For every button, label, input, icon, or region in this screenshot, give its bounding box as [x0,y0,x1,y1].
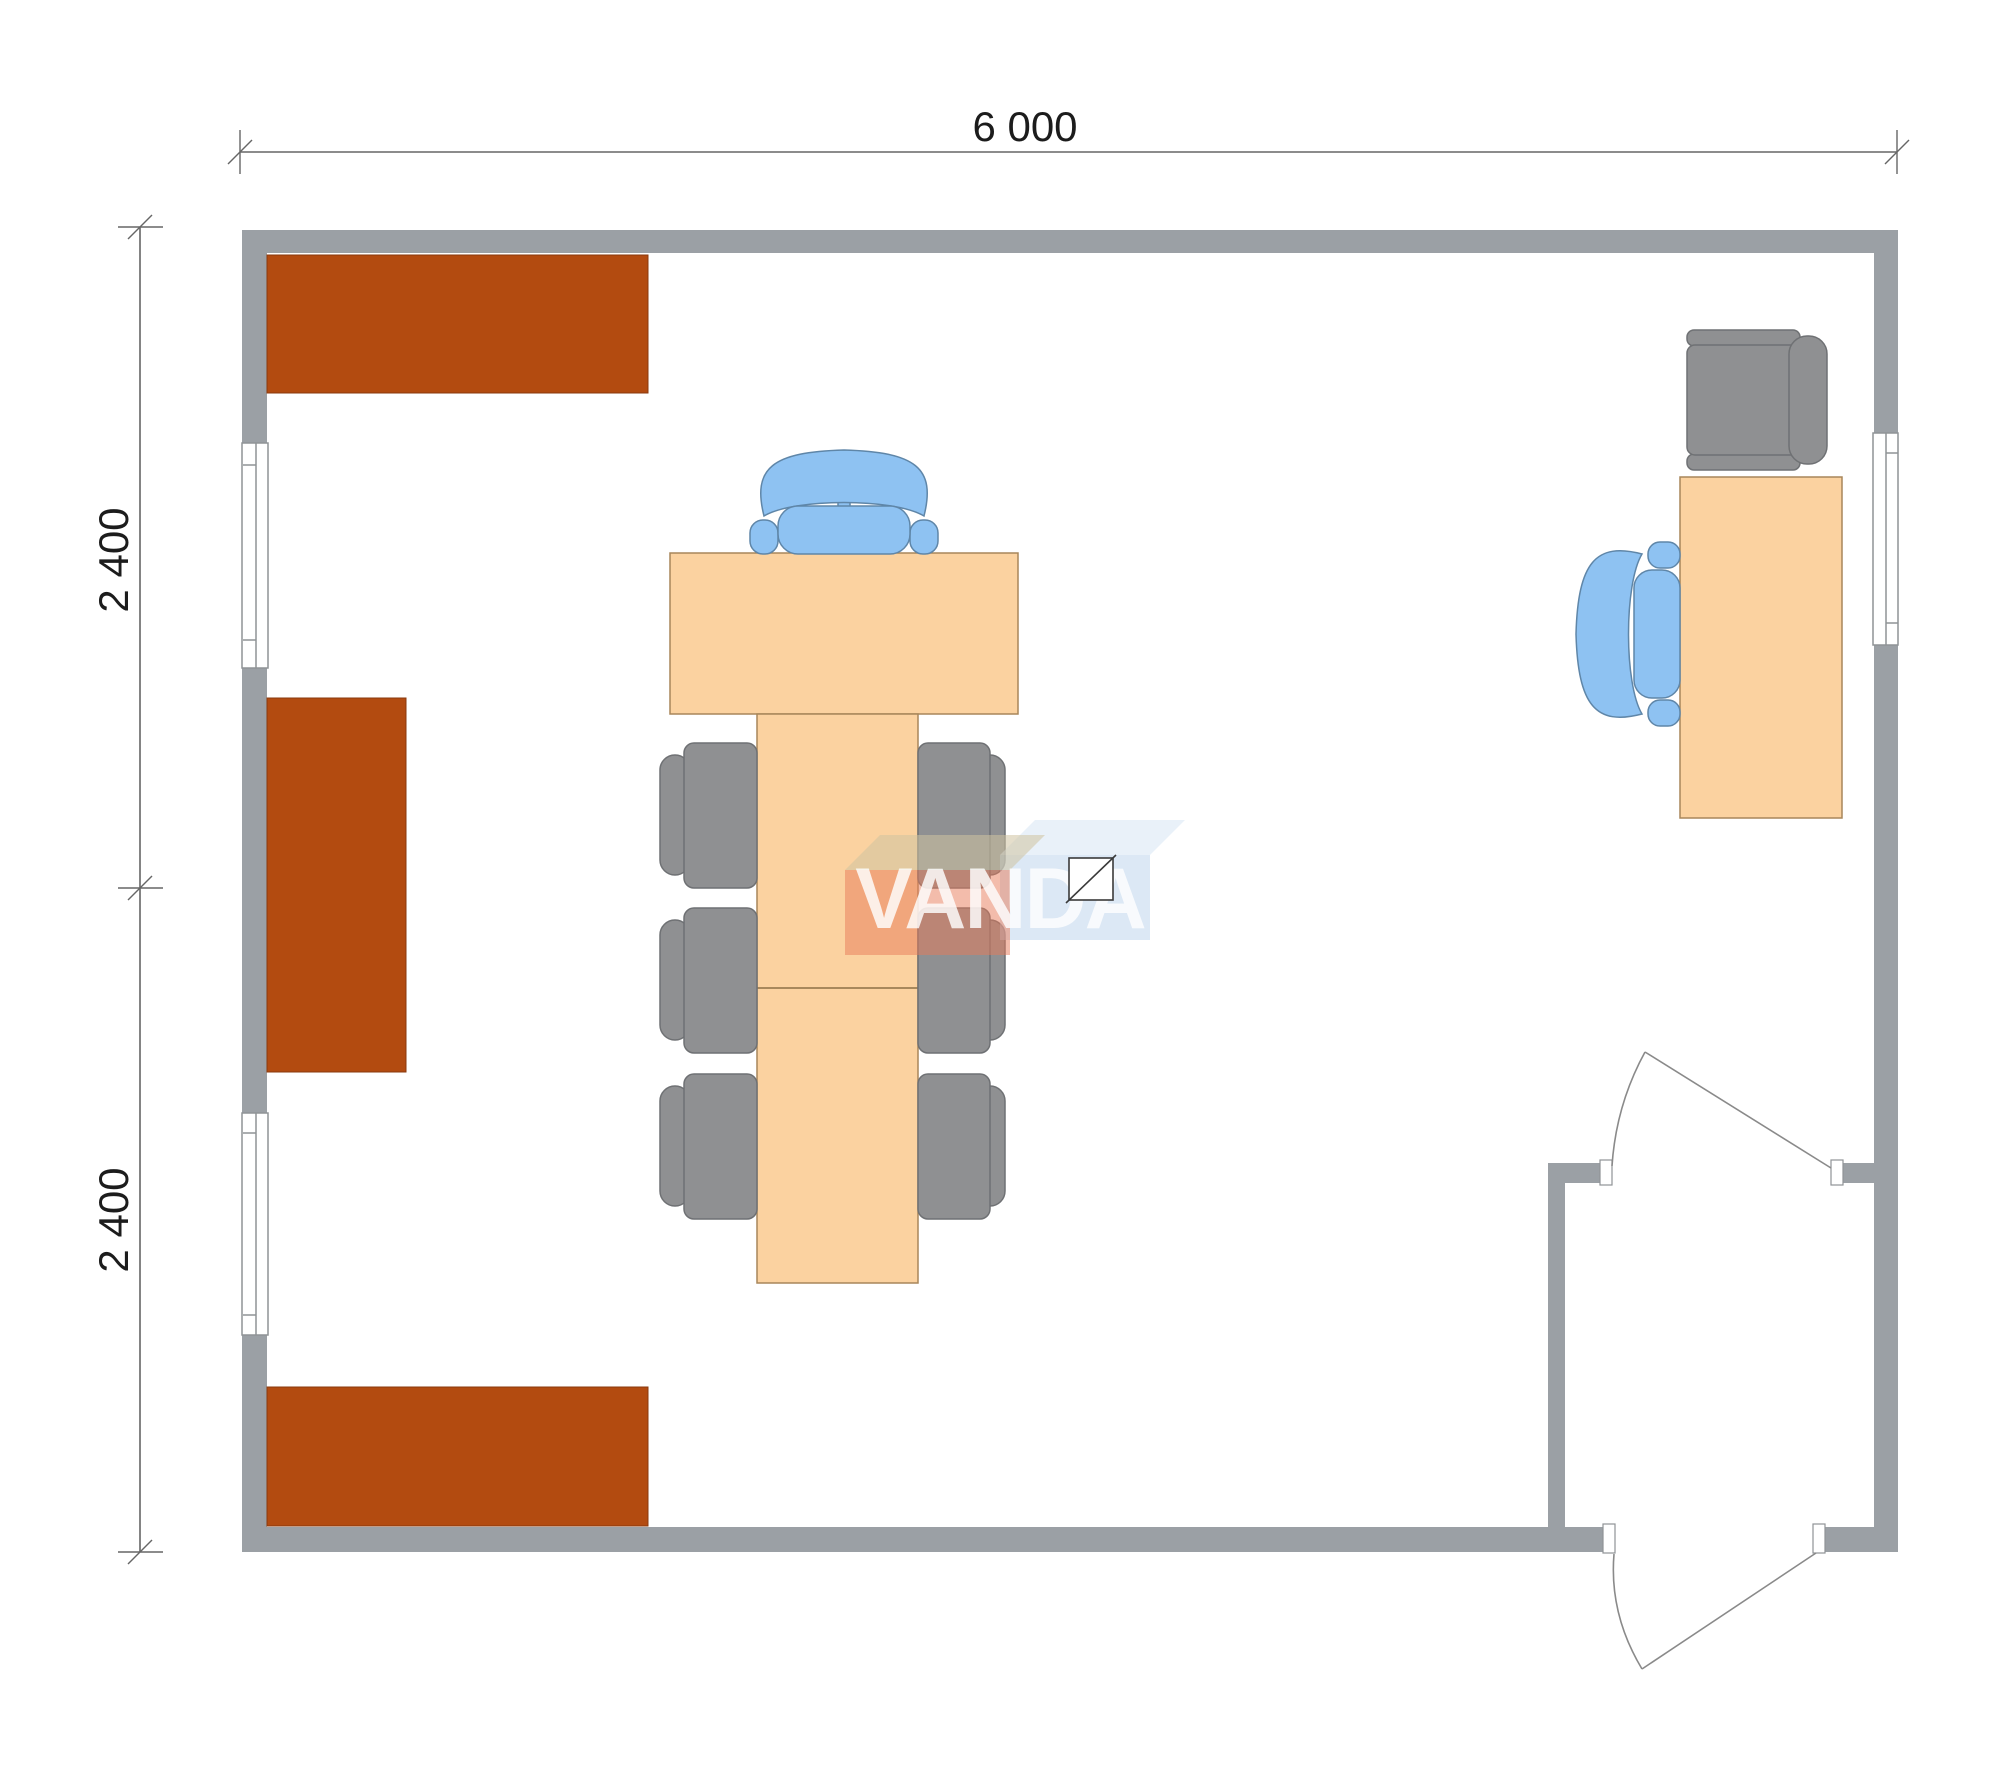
window-left-upper [242,443,268,668]
wall-top [242,230,1898,253]
floor-symbol [1066,855,1116,903]
meeting-table-extension [757,714,918,1283]
wall-left-middle [242,668,267,1113]
wall-vestibule-top-right [1843,1163,1874,1183]
dimension-label-width: 6 000 [972,103,1077,150]
cabinet-top-left [267,255,648,393]
meeting-chair-left-1 [660,743,757,888]
interior-door-jamb-left [1600,1160,1612,1185]
wall-right-upper [1874,253,1898,433]
interior-door-jamb-right [1831,1160,1843,1185]
meeting-chair-right-3 [918,1074,1005,1219]
wall-left-lower [242,1335,267,1527]
wall-vestibule-side [1548,1183,1565,1527]
window-right [1873,433,1898,645]
floor-plan-svg: 6 000 2 400 2 400 [0,0,2000,1773]
exterior-door-jamb-left [1603,1524,1615,1553]
floor-plan-page: 6 000 2 400 2 400 [0,0,2000,1773]
wall-left-upper [242,253,267,443]
meeting-chair-left-3 [660,1074,757,1219]
cabinet-middle-left [267,698,406,1072]
exterior-door-jamb-right [1813,1524,1825,1553]
wall-bottom-left [242,1527,1603,1552]
office-chair-desk [1576,542,1680,726]
meeting-chair-left-2 [660,908,757,1053]
desk-right [1680,477,1842,818]
wall-bottom-right [1825,1527,1898,1552]
cabinet-bottom-left [267,1387,648,1526]
dimension-label-depth-top: 2 400 [90,507,137,612]
visitor-armchair [1687,330,1827,470]
window-left-lower [242,1113,268,1335]
dimension-label-depth-bottom: 2 400 [90,1167,137,1272]
watermark: VANDA [845,820,1185,955]
meeting-table-head [670,553,1018,714]
executive-chair-meeting [750,450,938,554]
wall-vestibule-top-left [1548,1163,1600,1183]
wall-right-lower [1874,645,1898,1527]
